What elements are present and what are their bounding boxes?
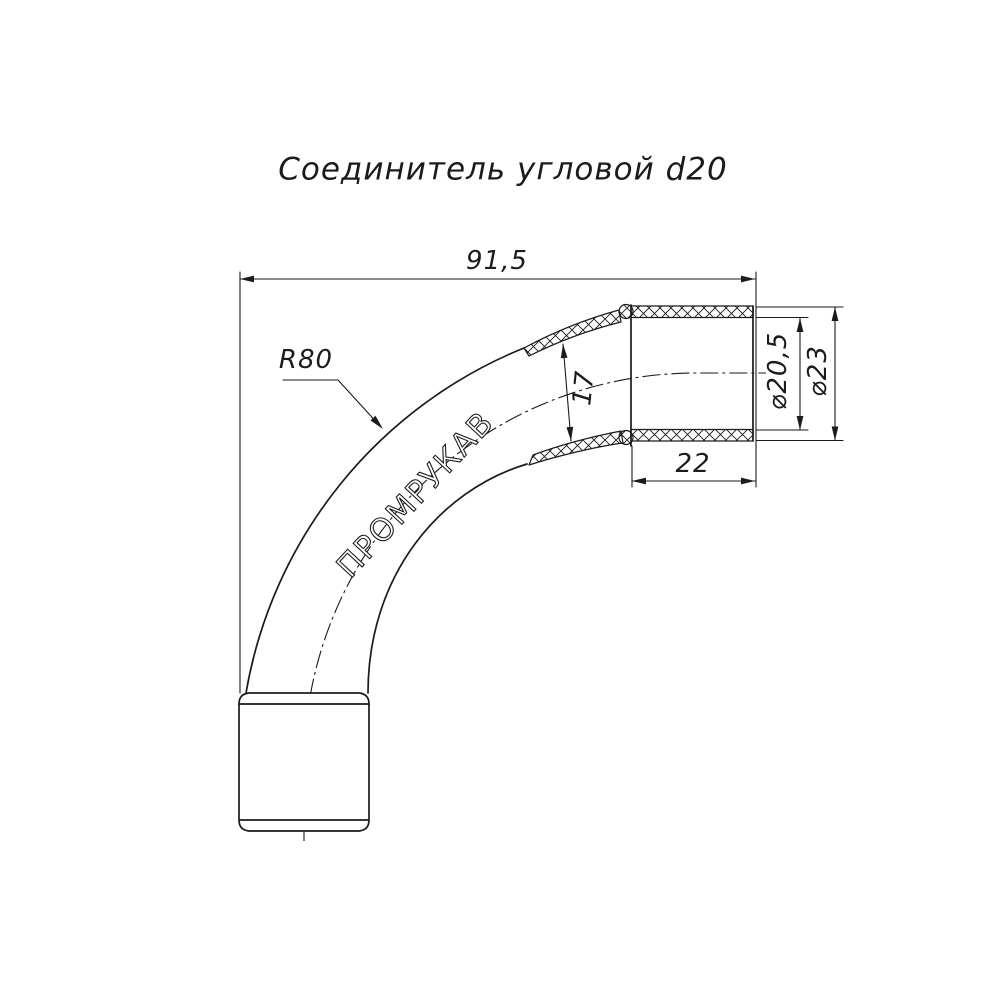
drawing-linework: ПРОМРУКАВ <box>0 0 1000 1000</box>
centerline-path <box>304 373 766 841</box>
arrowhead <box>240 276 254 283</box>
elbow-body-outline <box>239 305 753 831</box>
dim-inner-dia-value: ⌀20,5 <box>765 332 791 411</box>
arrowhead <box>832 427 839 441</box>
left-socket-body <box>239 693 369 831</box>
arrowhead <box>567 427 574 441</box>
dim-socket-length-value: 22 <box>675 451 710 477</box>
arrowhead <box>797 416 804 430</box>
radius-leader-line <box>283 380 380 426</box>
arrowhead <box>832 307 839 321</box>
dim-overall-value: 91,5 <box>466 248 528 274</box>
socket-wall-section-top <box>631 306 753 318</box>
dim-outer-dia-value: ⌀23 <box>805 345 831 397</box>
section-hatched-walls <box>524 305 753 466</box>
arrowhead <box>741 276 755 283</box>
dim-radius-value: R80 <box>279 347 333 373</box>
bend-wall-section-top <box>524 310 621 356</box>
pipe-centerline <box>304 373 766 841</box>
brand-text-on-pipe: ПРОМРУКАВ <box>330 404 502 584</box>
arrowhead <box>632 478 646 485</box>
arrowhead <box>561 344 568 358</box>
bend-wall-section-bottom <box>529 431 623 465</box>
arrowhead <box>797 318 804 332</box>
drawing-title: Соединитель угловой d20 <box>278 155 728 186</box>
technical-drawing-page: ПРОМРУКАВ Соединитель угловой d20 91,5 R… <box>0 0 1000 1000</box>
arrowhead <box>741 478 755 485</box>
socket-wall-section-bottom <box>631 430 753 442</box>
dim-bore-value: 17 <box>569 369 599 407</box>
